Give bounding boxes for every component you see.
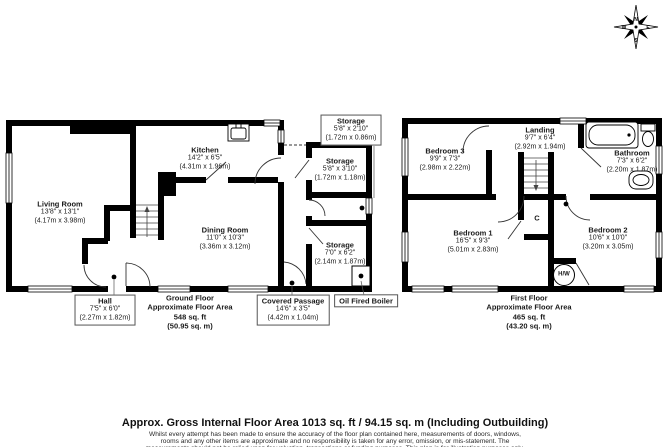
room-label-kitchen: Kitchen 14'2" x 6'5" (4.31m x 1.96m)	[180, 146, 231, 173]
outbuilding-door-openings	[306, 158, 312, 244]
room-label-hall: Hall 7'5" x 6'0" (2.27m x 1.82m)	[75, 295, 136, 326]
bathroom-door-leaf	[581, 148, 601, 167]
bathtub-icon	[586, 122, 638, 148]
ground-floor-stairs-icon	[136, 205, 158, 237]
ground-floor-summary: Ground Floor Approximate Floor Area 548 …	[147, 293, 232, 331]
room-label-bedroom-1: Bedroom 1 16'5" x 9'3" (5.01m x 2.83m)	[448, 229, 499, 256]
cupboard-door-leaf	[508, 221, 521, 239]
compass-west-label: W	[622, 25, 627, 31]
footer-disclaimer-line-1: Whilst every attempt has been made to en…	[0, 431, 670, 438]
label-hot-water: H/W	[558, 271, 570, 279]
room-label-covered-passage: Covered Passage 14'6" x 3'5" (4.42m x 1.…	[257, 295, 330, 326]
room-label-bathroom: Bathroom 7'3" x 6'2" (2.20m x 1.87m)	[607, 149, 658, 176]
label-cupboard: C	[534, 213, 539, 222]
footer-gross-area-title: Approx. Gross Internal Floor Area 1013 s…	[0, 417, 670, 429]
label-oil-fired-boiler: Oil Fired Boiler	[334, 294, 398, 307]
floorplan-drawing: N S W E	[0, 0, 670, 447]
compass-icon: N S W E	[614, 5, 658, 49]
front-door-arc	[126, 263, 150, 287]
first-floor-summary: First Floor Approximate Floor Area 465 s…	[486, 293, 571, 331]
room-label-dining-room: Dining Room 11'0" x 10'3" (3.36m x 3.12m…	[200, 226, 251, 253]
hall-door-arc	[84, 265, 106, 287]
room-label-bedroom-3: Bedroom 3 9'9" x 7'3" (2.98m x 2.22m)	[420, 147, 471, 174]
kitchen-sink-icon	[228, 124, 249, 141]
hw-cupboard-door-leaf	[576, 263, 589, 285]
bedroom2-door-arc	[566, 196, 590, 220]
first-floor-stairs-icon	[524, 158, 548, 191]
passage-door-arc	[284, 262, 306, 284]
room-label-landing: Landing 9'7" x 6'4" (2.92m x 1.94m)	[515, 126, 566, 153]
room-label-storage-top: Storage 5'8" x 2'10" (1.72m x 0.86m)	[321, 115, 382, 146]
room-label-living-room: Living Room 13'8" x 13'1" (4.17m x 3.98m…	[35, 200, 86, 227]
room-label-storage-low: Storage 7'0" x 6'2" (2.14m x 1.87m)	[315, 241, 366, 268]
room-label-bedroom-2: Bedroom 2 10'6" x 10'0" (3.20m x 3.05m)	[583, 226, 634, 253]
room-label-storage-mid: Storage 5'8" x 3'10" (1.72m x 1.18m)	[315, 157, 366, 184]
outbuilding-windows	[366, 198, 372, 214]
toilet-icon	[641, 124, 655, 147]
compass-north-label: N	[634, 17, 638, 23]
floorplan-page: N S W E Living Room 13'8" x 13'1" (4.17m…	[0, 0, 670, 447]
